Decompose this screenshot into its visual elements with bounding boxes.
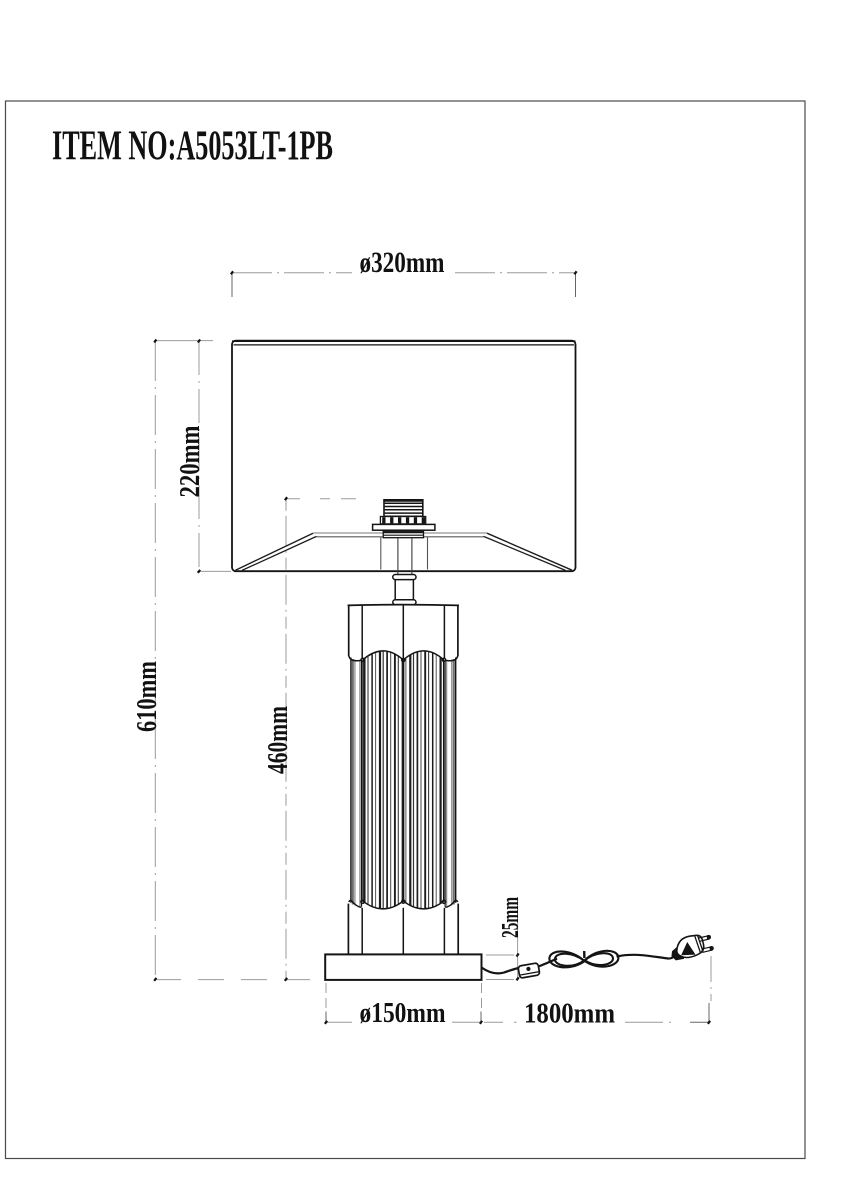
- svg-text:ITEM NO:A5053LT-1PB: ITEM NO:A5053LT-1PB: [52, 124, 333, 170]
- svg-text:1800mm: 1800mm: [524, 999, 615, 1030]
- svg-text:460mm: 460mm: [263, 706, 294, 774]
- svg-text:610mm: 610mm: [132, 661, 163, 732]
- svg-text:ø150mm: ø150mm: [360, 998, 446, 1029]
- svg-text:220mm: 220mm: [175, 426, 206, 498]
- svg-text:ø320mm: ø320mm: [360, 246, 445, 279]
- svg-text:25mm: 25mm: [498, 897, 524, 938]
